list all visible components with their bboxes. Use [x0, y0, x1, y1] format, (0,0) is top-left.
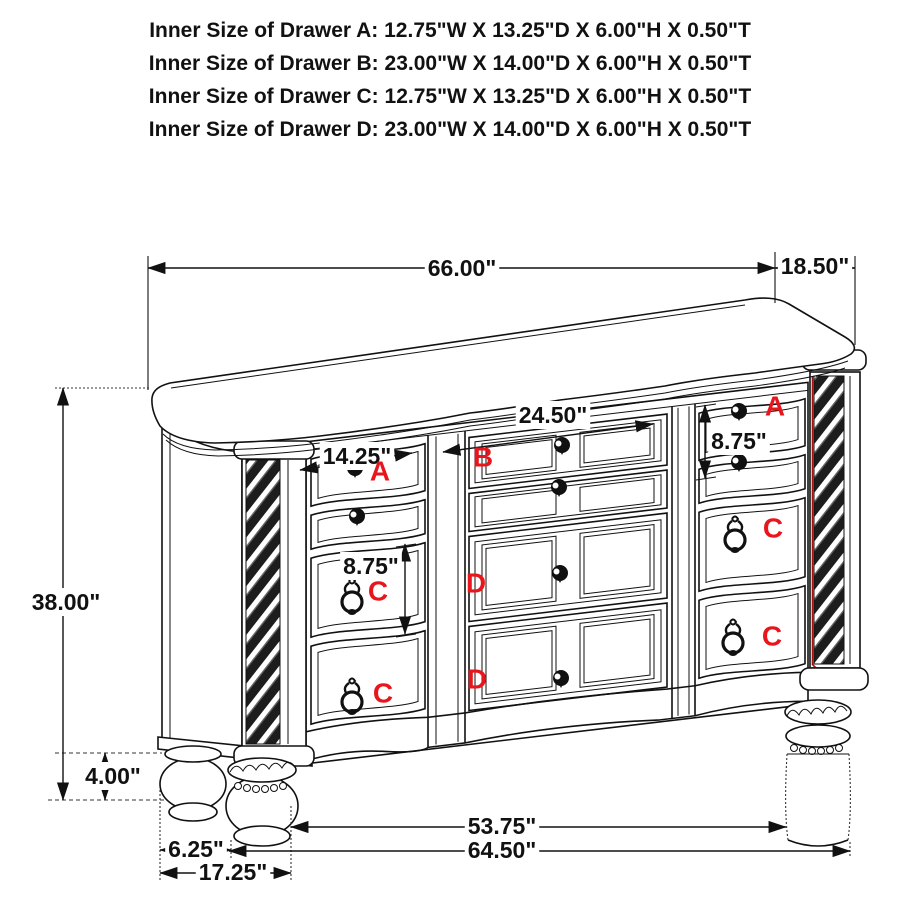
dim-drawer-a-height-label: 8.75": [711, 428, 767, 454]
left-side-panel: [162, 414, 242, 757]
dim-foot-height-label: 4.00": [85, 763, 141, 789]
left-drawer-c2: [311, 631, 425, 724]
right-drawer-c1: [699, 498, 805, 592]
drawer-label-b: B: [473, 442, 493, 473]
dim-top-width-label: 66.00": [428, 255, 496, 281]
front-left-foot: [226, 758, 298, 846]
drawer-label-c-right-1: C: [763, 513, 783, 544]
dim-side-depth-label: 17.25": [199, 859, 267, 885]
back-left-foot: [160, 746, 226, 821]
drawer-label-a-left: A: [370, 456, 390, 487]
right-drawer-c2: [699, 586, 805, 679]
left-column: [234, 441, 314, 766]
drawer-label-a-right: A: [765, 391, 785, 422]
drawer-label-c-right-2: C: [762, 621, 782, 652]
dim-foot-span-label: 53.75": [468, 813, 536, 839]
dim-top-depth-label: 18.50": [781, 253, 849, 279]
drawer-label-c-left-2: C: [373, 678, 393, 709]
dresser-cabinet: [152, 298, 868, 846]
drawer-label-c-left-1: C: [368, 576, 388, 607]
drawer-label-d-1: D: [466, 568, 486, 599]
dresser-dimension-diagram: Inner Size of Drawer A: 12.75"W X 13.25"…: [0, 0, 900, 900]
right-front-foot: [785, 700, 851, 846]
dim-drawer-b-label: 24.50": [519, 402, 587, 428]
dresser-line-drawing: 66.00" 18.50" 38.00" 4.00" 6.25" 17.25" …: [0, 0, 900, 900]
dim-height-label: 38.00": [32, 589, 100, 615]
dim-base-width-label: 64.50": [468, 837, 536, 863]
drawer-label-d-2: D: [467, 664, 487, 695]
right-column: [800, 350, 868, 690]
